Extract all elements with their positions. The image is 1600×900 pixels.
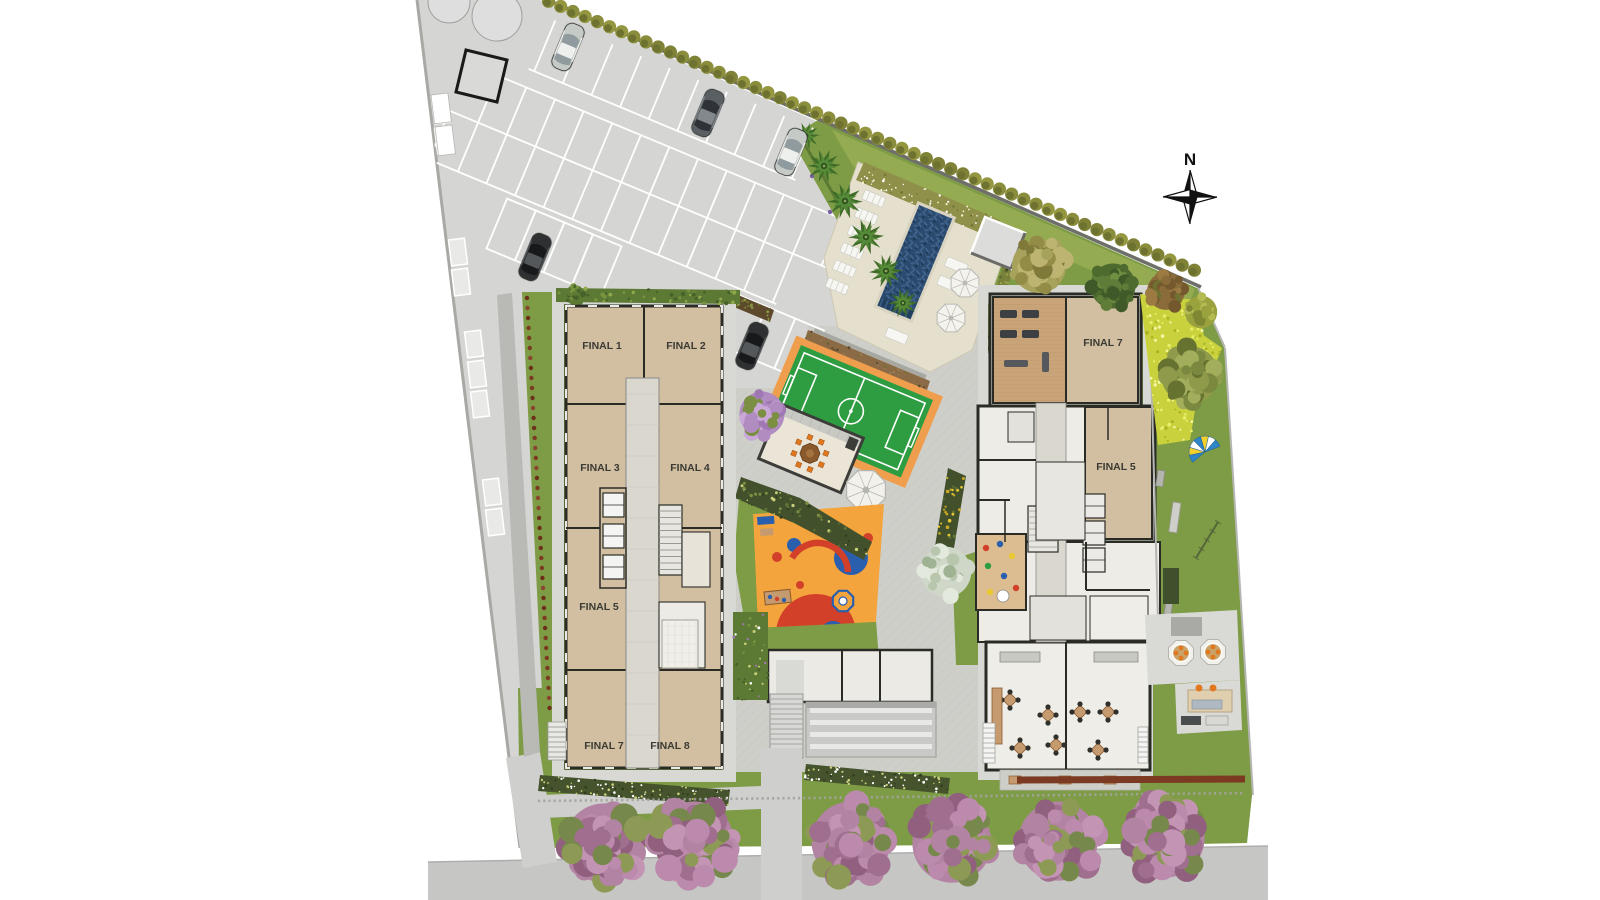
svg-text:FINAL 1: FINAL 1: [582, 340, 622, 352]
svg-text:N: N: [1184, 150, 1196, 169]
svg-text:FINAL 7: FINAL 7: [584, 740, 624, 752]
svg-text:FINAL 2: FINAL 2: [666, 340, 706, 352]
svg-text:FINAL 7: FINAL 7: [1083, 337, 1123, 349]
svg-text:FINAL 5: FINAL 5: [1096, 461, 1136, 473]
svg-text:FINAL 3: FINAL 3: [580, 462, 620, 474]
svg-text:FINAL 4: FINAL 4: [670, 462, 710, 474]
svg-text:FINAL 8: FINAL 8: [650, 740, 690, 752]
svg-text:FINAL 5: FINAL 5: [579, 601, 619, 613]
